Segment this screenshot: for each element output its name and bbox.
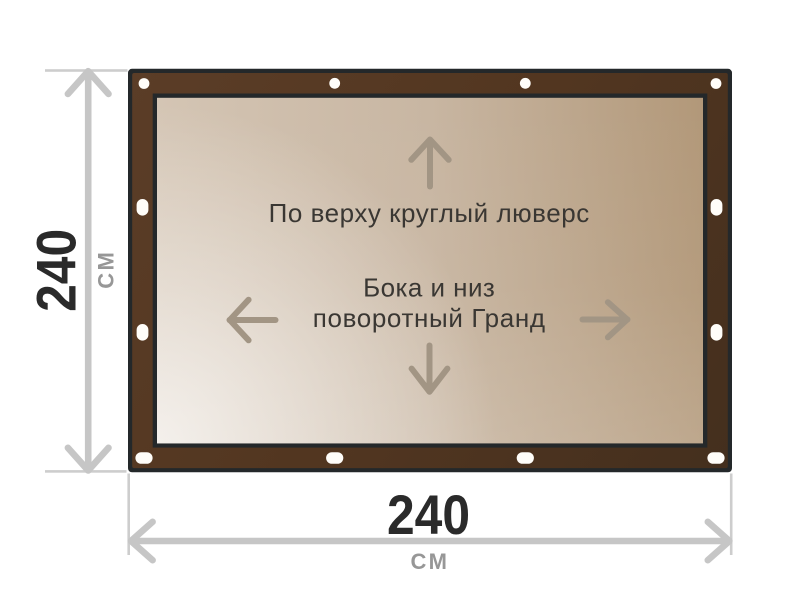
svg-text:По верху круглый люверс: По верху круглый люверс <box>269 198 590 228</box>
svg-text:240: 240 <box>26 229 88 312</box>
svg-text:Бока и низ: Бока и низ <box>363 272 495 302</box>
svg-text:СМ: СМ <box>410 549 449 574</box>
svg-text:поворотный Гранд: поворотный Гранд <box>313 303 546 333</box>
svg-text:СМ: СМ <box>93 250 118 289</box>
svg-text:240: 240 <box>387 484 470 546</box>
